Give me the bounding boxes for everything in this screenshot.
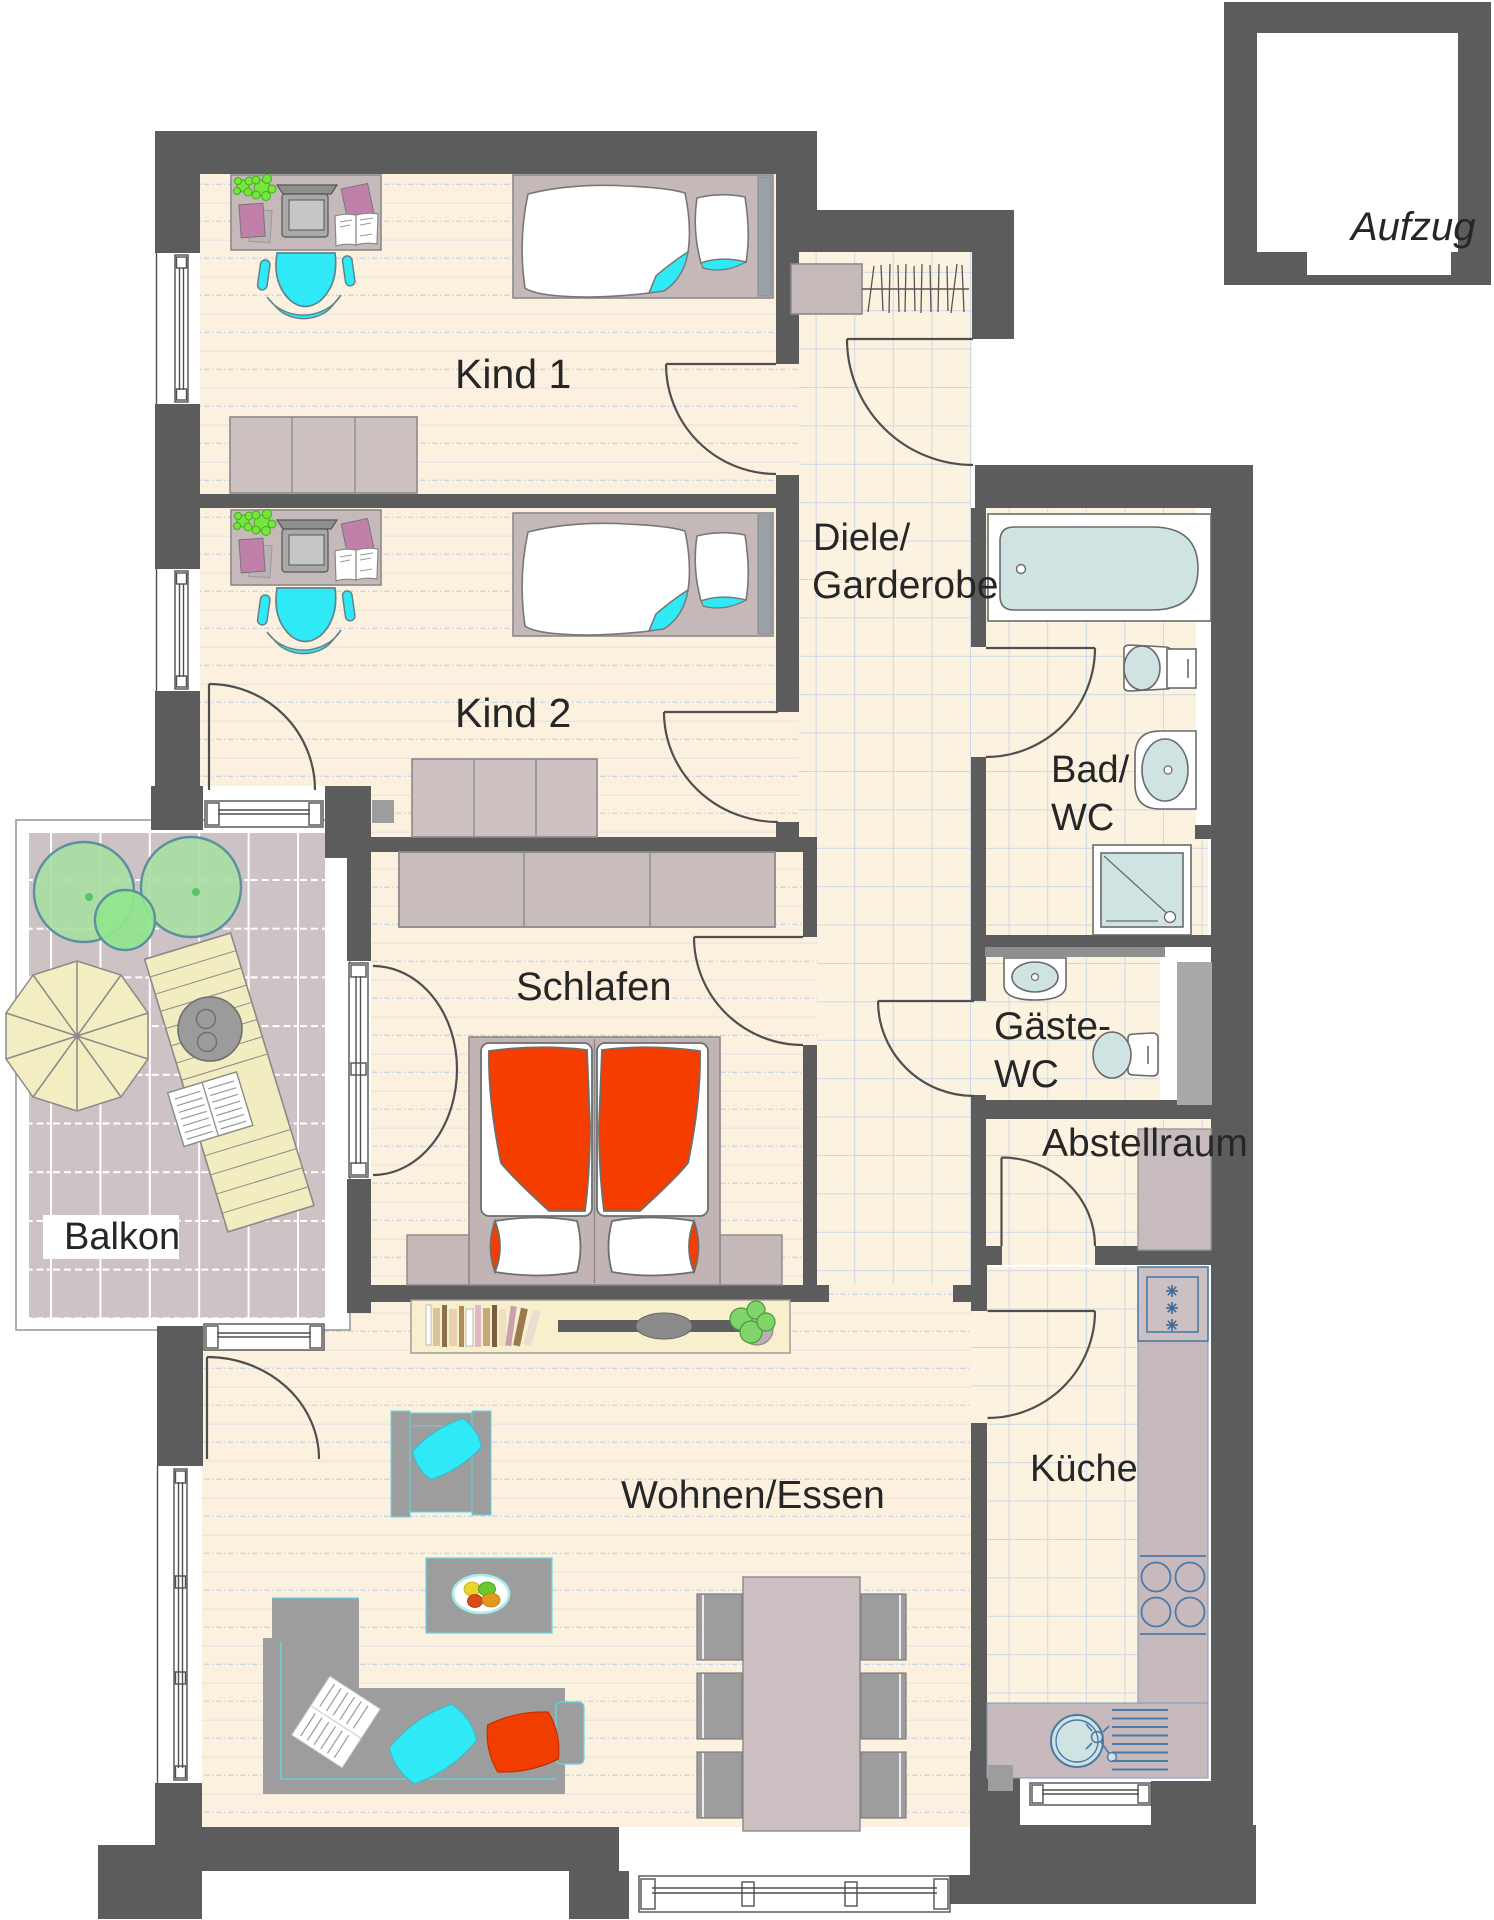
svg-text:Küche: Küche [1030,1448,1138,1490]
svg-text:Wohnen/Essen: Wohnen/Essen [621,1474,885,1517]
svg-text:Garderobe: Garderobe [812,564,998,607]
svg-text:Balkon: Balkon [64,1216,180,1258]
svg-text:WC: WC [1051,797,1114,839]
svg-text:Gäste-: Gäste- [994,1005,1111,1048]
svg-text:Kind 2: Kind 2 [455,690,571,736]
svg-text:Abstellraum: Abstellraum [1042,1122,1248,1165]
svg-text:Bad/: Bad/ [1051,749,1130,791]
svg-text:Kind 1: Kind 1 [455,351,571,397]
svg-text:WC: WC [994,1053,1059,1096]
svg-text:Diele/: Diele/ [813,517,911,559]
svg-text:Schlafen: Schlafen [516,965,672,1009]
svg-text:Aufzug: Aufzug [1349,205,1476,249]
